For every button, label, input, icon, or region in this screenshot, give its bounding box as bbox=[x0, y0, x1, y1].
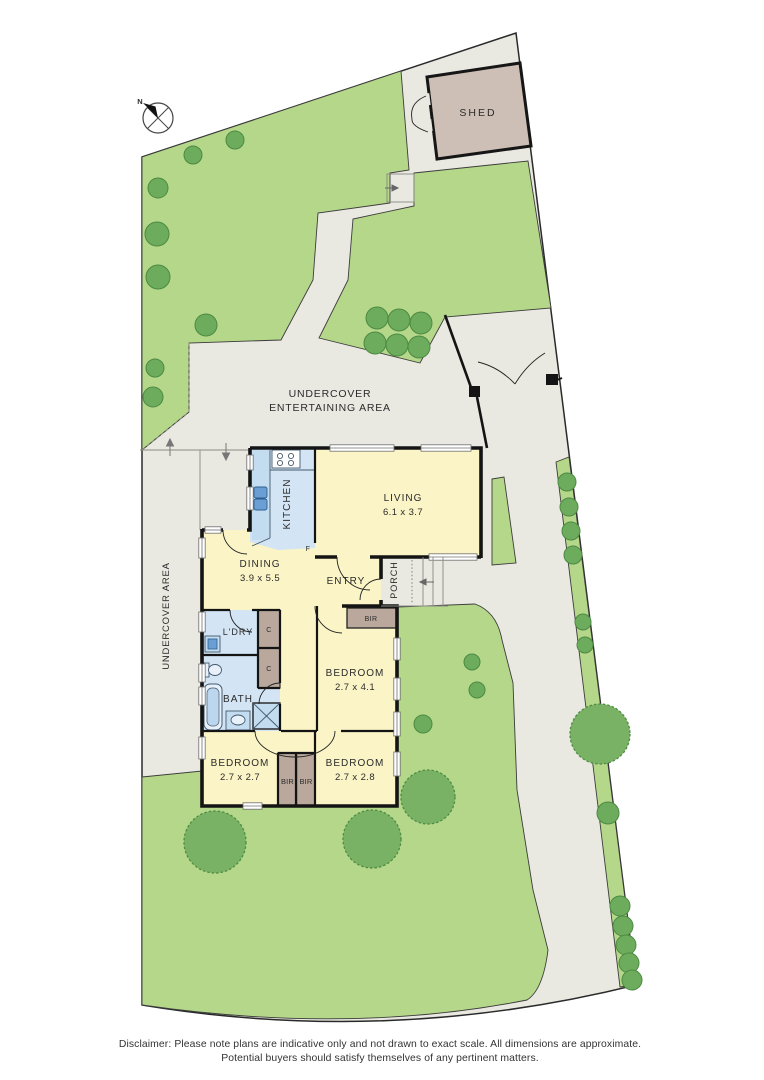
bedroom-rear-right-dims: 2.7 x 2.8 bbox=[335, 772, 375, 783]
floorplan-page: SHED bbox=[0, 0, 764, 1080]
dining-label: DINING bbox=[240, 559, 281, 570]
sink-icon bbox=[254, 499, 267, 510]
sink-icon bbox=[254, 487, 267, 498]
gate-post bbox=[546, 374, 558, 385]
porch-label: PORCH bbox=[389, 561, 399, 599]
bir-left-label: BIR bbox=[281, 777, 294, 786]
entertaining-area-label-1: UNDERCOVER bbox=[289, 388, 372, 400]
disclaimer-line-1: Disclaimer: Please note plans are indica… bbox=[119, 1039, 641, 1050]
disclaimer: Disclaimer: Please note plans are indica… bbox=[119, 1039, 641, 1064]
laundry-label: L'DRY bbox=[223, 627, 254, 637]
living-label: LIVING bbox=[384, 493, 423, 504]
entertaining-area-label-2: ENTERTAINING AREA bbox=[269, 402, 391, 414]
bir-right-label: BIR bbox=[299, 777, 312, 786]
cupboard-top-label: C bbox=[266, 627, 271, 634]
disclaimer-line-2: Potential buyers should satisfy themselv… bbox=[221, 1053, 539, 1064]
bedroom-main-label: BEDROOM bbox=[326, 668, 385, 679]
living-dims: 6.1 x 3.7 bbox=[383, 507, 423, 518]
undercover-area-label: UNDERCOVER AREA bbox=[161, 562, 172, 670]
site-plan: SHED bbox=[0, 0, 764, 1080]
entry-label: ENTRY bbox=[327, 576, 366, 587]
stove-icon bbox=[272, 450, 300, 468]
bedroom-rear-right-label: BEDROOM bbox=[326, 758, 385, 769]
dining-dims: 3.9 x 5.5 bbox=[240, 573, 280, 584]
gate-post bbox=[469, 386, 480, 397]
fridge-label: F bbox=[306, 546, 311, 553]
laundry-trough-icon bbox=[205, 636, 220, 652]
shed-label: SHED bbox=[459, 107, 496, 119]
bir-main-label: BIR bbox=[365, 616, 378, 623]
bedroom-rear-left-dims: 2.7 x 2.7 bbox=[220, 772, 260, 783]
shower-icon bbox=[253, 703, 280, 729]
cupboard-bottom-label: C bbox=[266, 666, 271, 673]
compass-north-label: N bbox=[137, 97, 142, 106]
kitchen-label: KITCHEN bbox=[282, 479, 293, 530]
compass: N bbox=[137, 97, 173, 133]
bath-label: BATH bbox=[223, 694, 253, 705]
bedroom-rear-left-label: BEDROOM bbox=[211, 758, 270, 769]
bedroom-main-dims: 2.7 x 4.1 bbox=[335, 682, 375, 693]
